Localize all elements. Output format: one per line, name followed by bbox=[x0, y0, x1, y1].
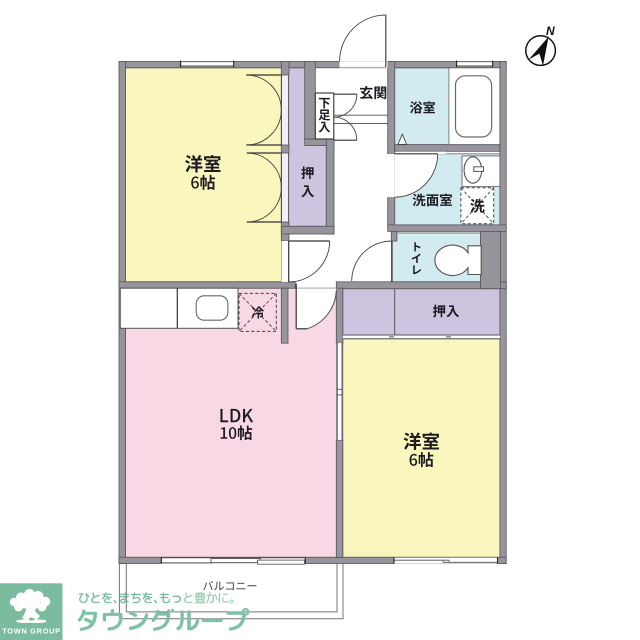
svg-text:N: N bbox=[546, 24, 555, 38]
svg-text:TOWN GROUP: TOWN GROUP bbox=[2, 627, 61, 636]
